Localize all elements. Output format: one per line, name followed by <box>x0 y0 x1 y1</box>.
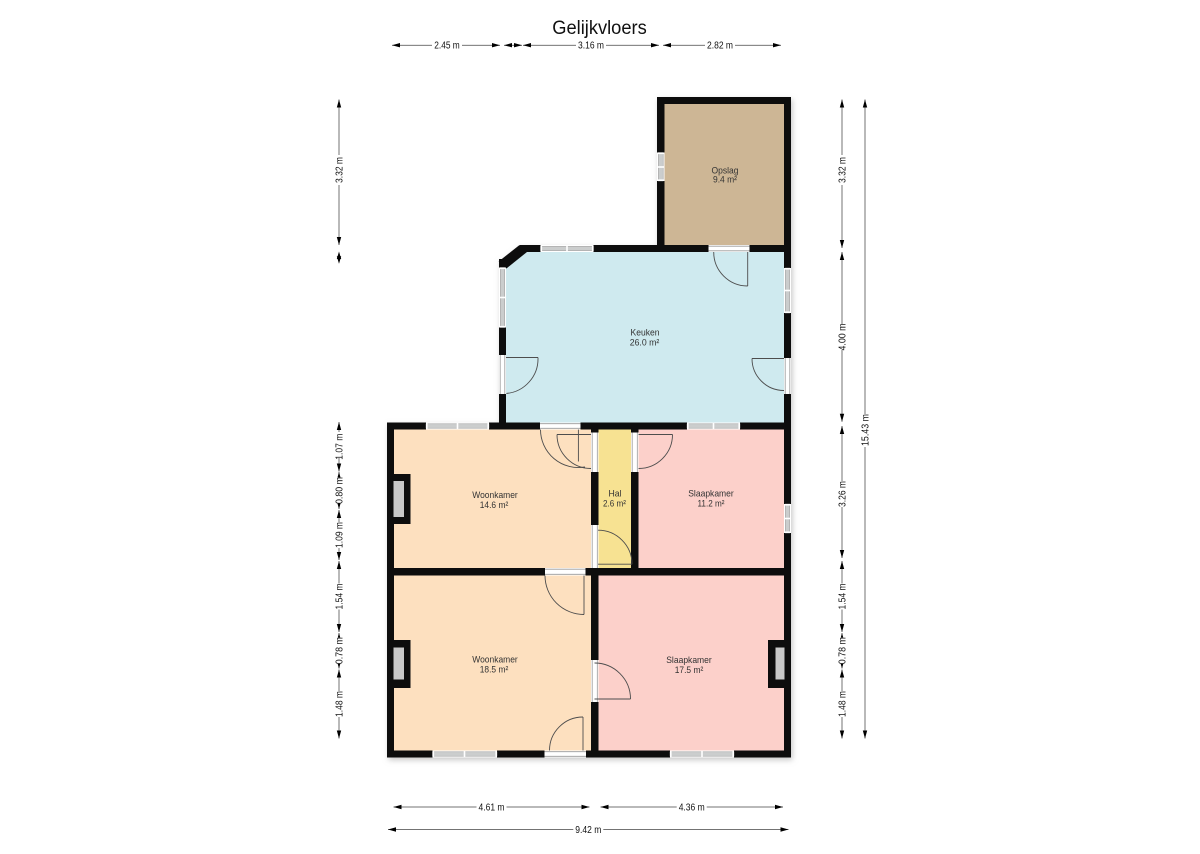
svg-text:15.43 m: 15.43 m <box>860 414 871 446</box>
svg-text:1.54 m: 1.54 m <box>334 584 345 610</box>
svg-text:4.36 m: 4.36 m <box>679 803 705 814</box>
svg-text:3.32 m: 3.32 m <box>334 157 345 183</box>
svg-text:18.5 m²: 18.5 m² <box>480 664 509 675</box>
svg-text:2.82 m: 2.82 m <box>707 41 733 52</box>
svg-text:1.09 m: 1.09 m <box>334 522 345 548</box>
svg-text:1.54 m: 1.54 m <box>837 584 848 610</box>
svg-text:3.16 m: 3.16 m <box>578 41 604 52</box>
svg-text:1.48 m: 1.48 m <box>334 691 345 717</box>
svg-text:14.6 m²: 14.6 m² <box>480 500 509 511</box>
svg-text:3.26 m: 3.26 m <box>837 481 848 507</box>
svg-text:11.2 m²: 11.2 m² <box>698 498 725 509</box>
svg-text:Gelijkvloers: Gelijkvloers <box>552 17 647 39</box>
svg-text:9.42 m: 9.42 m <box>575 825 601 836</box>
svg-text:1.07 m: 1.07 m <box>334 434 345 460</box>
svg-text:0.78 m: 0.78 m <box>837 637 848 664</box>
svg-text:4.61 m: 4.61 m <box>479 803 505 814</box>
svg-text:9.4 m²: 9.4 m² <box>713 175 737 186</box>
svg-text:17.5 m²: 17.5 m² <box>675 665 704 676</box>
svg-text:2.45 m: 2.45 m <box>434 41 460 52</box>
svg-text:0.80 m: 0.80 m <box>334 477 345 504</box>
svg-text:26.0 m²: 26.0 m² <box>630 337 660 348</box>
svg-text:4.00 m: 4.00 m <box>837 324 848 351</box>
svg-text:0.78 m: 0.78 m <box>334 637 345 664</box>
svg-text:1.48 m: 1.48 m <box>837 691 848 717</box>
svg-text:3.32 m: 3.32 m <box>837 157 848 183</box>
svg-text:2.6 m²: 2.6 m² <box>603 498 626 509</box>
